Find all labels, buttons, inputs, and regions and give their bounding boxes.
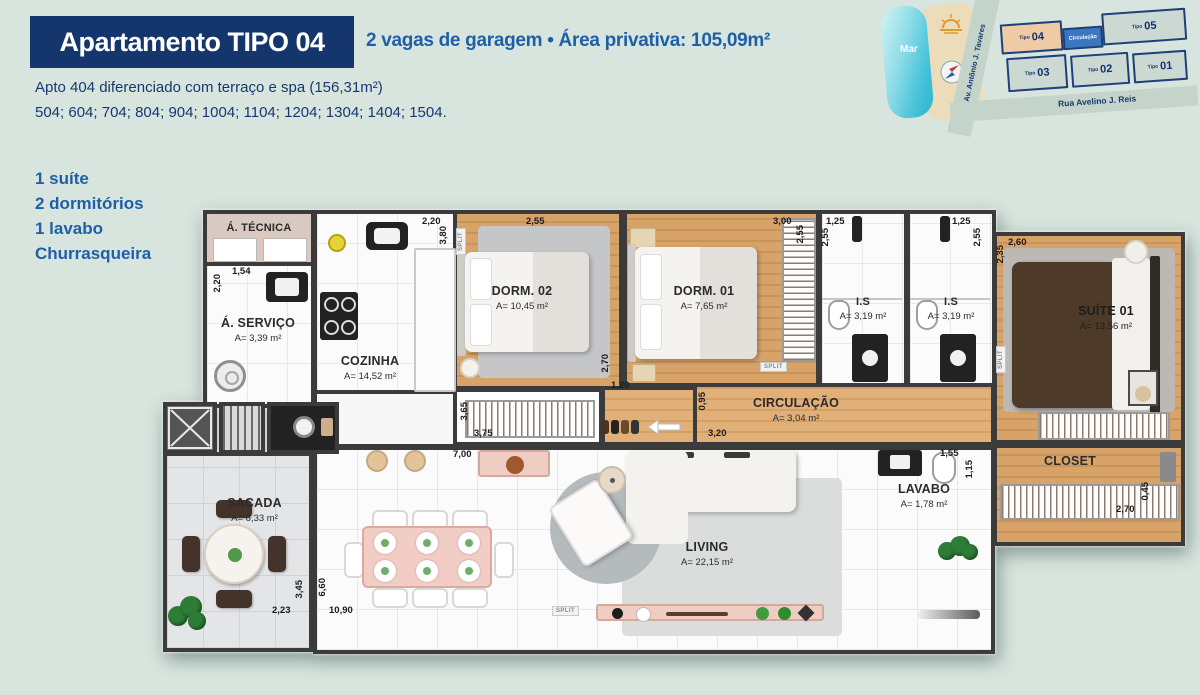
dim-label: 2,20 [212,274,223,293]
room-label-closet: CLOSET [1010,452,1130,470]
room-label-cozinha: COZINHAA= 14,52 m² [310,352,430,382]
laundry-sink-icon [266,272,308,302]
bedside-stool [460,358,480,378]
round-table [204,524,264,584]
boiler-unit [213,238,257,262]
room-label-area-servico: Á. SERVIÇOA= 3,39 m² [206,314,310,344]
split-ac-label: SPLIT [552,606,579,616]
stool [366,450,388,472]
dim-label: 0,95 [697,392,708,411]
vanity-icon [940,334,976,382]
stool [404,450,426,472]
room-label-sacada: SACADAA= 6,33 m² [202,494,307,524]
dim-label: 1,54 [232,266,251,277]
room-label-is-2: I.SA= 3,19 m² [908,292,994,322]
lamp-icon [1124,240,1148,264]
entry-arrow-icon [648,420,682,434]
shoes [631,420,639,434]
fruit-bowl-icon [328,234,346,252]
dim-label: 3,65 [459,402,470,421]
dim-label: 2,55 [795,225,806,244]
vanity-icon [878,450,922,476]
floor-plan: Á. TÉCNICA Á. SERVIÇOA= 3,39 m² COZINHAA… [0,0,1200,695]
dim-label: 2,35 [995,245,1006,264]
room-label-dorm-02: DORM. 02A= 10,45 m² [462,282,582,312]
nightstand [632,364,656,382]
room-label-area-tecnica: Á. TÉCNICA [205,218,313,236]
dim-label: 2,60 [1008,237,1027,248]
room-label-living: LIVINGA= 22,15 m² [652,538,762,568]
dim-label: 2,55 [526,216,545,227]
plant-icon [938,536,982,568]
elevator [163,402,217,454]
shoes [621,420,629,434]
split-ac-label: SPLIT [760,362,787,372]
stove-icon [320,292,358,340]
kitchen-sink-icon [366,222,408,250]
dim-label: 2,23 [272,605,291,616]
dim-label: 2,70 [1116,504,1135,515]
shoes [611,420,619,434]
sideboard [596,604,824,621]
heater-unit [1128,370,1158,406]
stairs [219,402,265,454]
wardrobe-rack [1038,412,1170,440]
boiler-unit [263,238,307,262]
room-label-suite-01: SUÍTE 01A= 13,56 m² [1046,302,1166,332]
shower-icon [940,216,950,242]
dim-label: 2,70 [600,354,611,373]
bed-suite-duvet [1012,262,1112,408]
closet-rack [1000,484,1180,520]
dim-label: 1,25 [826,216,845,227]
sofa-chaise [626,450,688,544]
plant-icon [166,594,212,640]
door-track [918,610,980,619]
churrasqueira-grill [267,402,339,454]
shower-icon [852,216,862,242]
elevator-x-icon [167,406,213,450]
dim-label: 0,45 [1140,482,1151,501]
dim-label: 3,75 [474,428,493,439]
dim-label: 3,00 [773,216,792,227]
dim-label: 3,80 [438,226,449,245]
washer-icon [214,360,246,392]
room-label-circulacao: CIRCULAÇÃOA= 3,04 m² [726,394,866,424]
dim-label: 3,20 [708,428,727,439]
vanity-icon [852,334,888,382]
split-ac-label: SPLIT [456,228,466,255]
room-label-is-1: I.SA= 3,19 m² [820,292,906,322]
dim-label: 1,25 [952,216,971,227]
room-label-lavabo: LAVABOA= 1,78 m² [874,480,974,510]
entry-hall [601,386,697,446]
dim-label: 3,45 [294,580,305,599]
dim-label: 2,55 [972,228,983,247]
dim-label: 2,55 [820,228,831,247]
dim-label: 1,20 [611,380,630,391]
room-label-dorm-01: DORM. 01A= 7,65 m² [644,282,764,312]
dim-label: 7,00 [453,449,472,460]
buffet-counter [478,450,550,477]
dim-label: 6,60 [317,578,328,597]
split-ac-label: SPLIT [996,346,1006,373]
shoes [601,420,609,434]
dim-label: 1,55 [940,448,959,459]
dim-label: 10,90 [329,605,353,616]
side-table [598,466,626,494]
dim-label: 1,15 [964,460,975,479]
closet-door [1160,452,1176,482]
